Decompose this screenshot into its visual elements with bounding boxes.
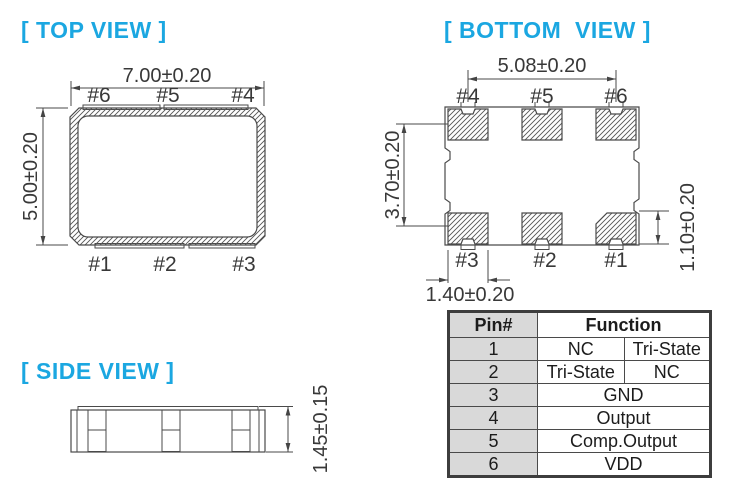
table-row: 4 Output — [449, 407, 711, 430]
function-cell: Tri-State — [624, 338, 711, 361]
dim-top-height: 5.00±0.20 — [20, 132, 42, 221]
table-row: 1 NC Tri-State — [449, 338, 711, 361]
function-cell: VDD — [538, 453, 711, 477]
pad-3 — [448, 213, 488, 244]
bottom-view-padheight-dimension: 1.10±0.20 — [639, 183, 699, 272]
top-view-pin-label: #6 — [87, 84, 110, 107]
bottom-view-pin-label: #1 — [604, 249, 627, 272]
bottom-view-drawing: 5.08±0.20 3.70±0.20 1.10±0.20 1. — [382, 55, 699, 306]
side-view-drawing: 1.45±0.15 — [71, 385, 332, 474]
side-view-body — [71, 410, 265, 452]
function-cell: Tri-State — [538, 361, 625, 384]
pad-5 — [522, 109, 562, 140]
pin-number-cell: 5 — [449, 430, 538, 453]
pad-4 — [448, 109, 488, 140]
pin-number-cell: 4 — [449, 407, 538, 430]
function-cell: Output — [538, 407, 711, 430]
function-header-cell: Function — [538, 312, 711, 338]
pin-number-cell: 6 — [449, 453, 538, 477]
pin-function-table: Pin# Function 1 NC Tri-State 2 Tri-State… — [447, 310, 712, 478]
pin-number-cell: 1 — [449, 338, 538, 361]
function-cell: Comp.Output — [538, 430, 711, 453]
top-view-pin-label: #5 — [156, 84, 179, 107]
pad-1 — [596, 213, 636, 244]
table-row: 3 GND — [449, 384, 711, 407]
pin-header-cell: Pin# — [449, 312, 538, 338]
datasheet-drawing-page: [ TOP VIEW ] [ BOTTOM VIEW ] [ SIDE VIEW… — [0, 0, 730, 491]
pad-2 — [522, 213, 562, 244]
dim-pad-span: 5.08±0.20 — [498, 55, 587, 77]
dim-pad-width: 1.40±0.20 — [426, 284, 515, 306]
function-cell: NC — [538, 338, 625, 361]
top-view-body — [70, 108, 265, 245]
dim-side-height: 1.45±0.15 — [310, 385, 332, 474]
function-cell: NC — [624, 361, 711, 384]
pin-number-cell: 2 — [449, 361, 538, 384]
top-view-height-dimension: 5.00±0.20 — [20, 108, 68, 245]
table-row: 6 VDD — [449, 453, 711, 477]
bottom-view-pin-label: #4 — [456, 85, 480, 108]
top-view-pin-label: #3 — [232, 253, 255, 276]
bottom-view-pin-label: #2 — [533, 249, 556, 272]
table-header-row: Pin# Function — [449, 312, 711, 338]
top-view-pin-label: #4 — [231, 84, 255, 107]
top-view-pin-label: #1 — [88, 253, 111, 276]
pad-6 — [596, 109, 636, 140]
bottom-view-rowspan-dimension: 3.70±0.20 — [382, 124, 448, 226]
pin-number-cell: 3 — [449, 384, 538, 407]
side-view-height-dimension: 1.45±0.15 — [259, 385, 332, 474]
bottom-view-pin-label: #5 — [530, 85, 553, 108]
dim-pad-height: 1.10±0.20 — [677, 183, 699, 272]
top-view-pin-label: #2 — [153, 253, 176, 276]
bottom-view-pin-label: #3 — [455, 249, 478, 272]
top-view-drawing: 7.00±0.20 5.00±0.20 #6 #5 #4 #1 #2 #3 — [20, 65, 265, 276]
dim-row-span: 3.70±0.20 — [382, 131, 404, 220]
function-cell: GND — [538, 384, 711, 407]
bottom-view-pin-label: #6 — [604, 85, 627, 108]
table-row: 5 Comp.Output — [449, 430, 711, 453]
table-row: 2 Tri-State NC — [449, 361, 711, 384]
